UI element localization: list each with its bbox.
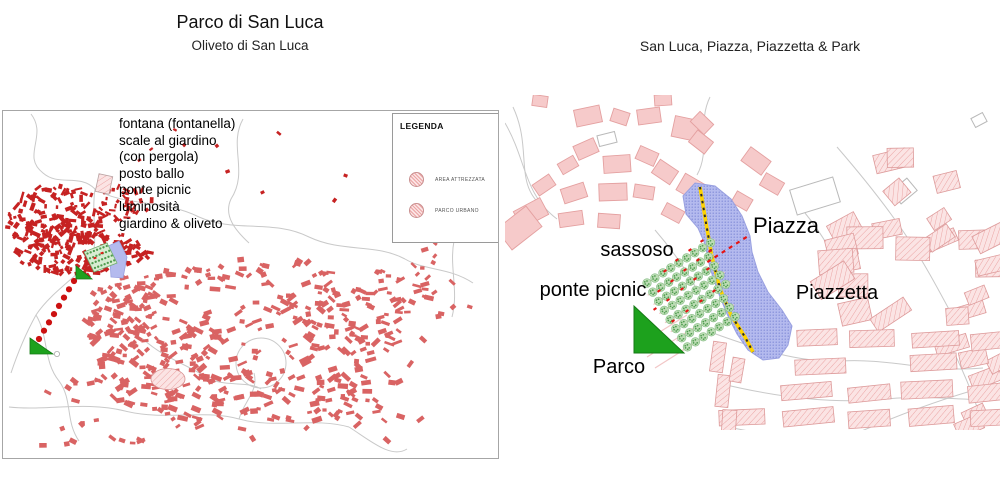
buildings-hatched (810, 227, 930, 332)
red-dotted-route (36, 278, 77, 342)
legend-items: AREA ATTREZZATAPARCO URBANO (409, 172, 485, 218)
town-overview-map: fontana (fontanella)scale al giardino(co… (2, 110, 499, 459)
annotation-line-3: posto ballo (119, 166, 235, 183)
legend-title: LEGENDA (400, 121, 444, 131)
legend-item-1: PARCO URBANO (409, 203, 485, 218)
annotation-line-5: luminosità (119, 199, 235, 216)
annotation-line-1: scale al giardino (119, 133, 235, 150)
map-label-piazzetta: Piazzetta (796, 282, 878, 305)
buildings-hatched (946, 254, 1000, 325)
buildings-outline-white (597, 113, 987, 215)
map-label-ponte-picnic: ponte picnic (540, 279, 647, 302)
map-label-piazza: Piazza (753, 213, 819, 239)
hatched-circle-icon (409, 203, 424, 218)
park-detail-canvas (505, 95, 1000, 430)
legend-item-label: AREA ATTREZZATA (435, 177, 485, 183)
annotation-line-4: ponte picnic (119, 182, 235, 199)
page-title: Parco di San Luca (0, 12, 500, 33)
annotation-list: fontana (fontanella)scale al giardino(co… (119, 116, 235, 232)
annotation-line-6: giardino & oliveto (119, 216, 235, 233)
buildings-historic-a (5, 183, 107, 255)
annotation-line-0: fontana (fontanella) (119, 116, 235, 133)
legend-item-0: AREA ATTREZZATA (409, 172, 485, 187)
sports-field (151, 369, 185, 390)
page-subtitle: Oliveto di San Luca (0, 38, 500, 53)
hatched-circle-icon (409, 172, 424, 187)
annotation-line-2: (con pergola) (119, 149, 235, 166)
legend-box: LEGENDA AREA ATTREZZATAPARCO URBANO (392, 113, 499, 243)
buildings-se-scatter (332, 360, 424, 445)
park-detail-map: sassosoponte picnicPiazzaPiazzettaParco (505, 95, 1000, 430)
right-map-title: San Luca, Piazza, Piazzetta & Park (505, 38, 995, 54)
piazza-area (683, 183, 792, 360)
plan-sheet: Parco di San Luca Oliveto di San Luca Sa… (0, 0, 1000, 500)
map-label-parco: Parco (593, 356, 645, 379)
map-label-sassoso: sassoso (600, 239, 673, 262)
legend-item-label: PARCO URBANO (435, 208, 479, 214)
